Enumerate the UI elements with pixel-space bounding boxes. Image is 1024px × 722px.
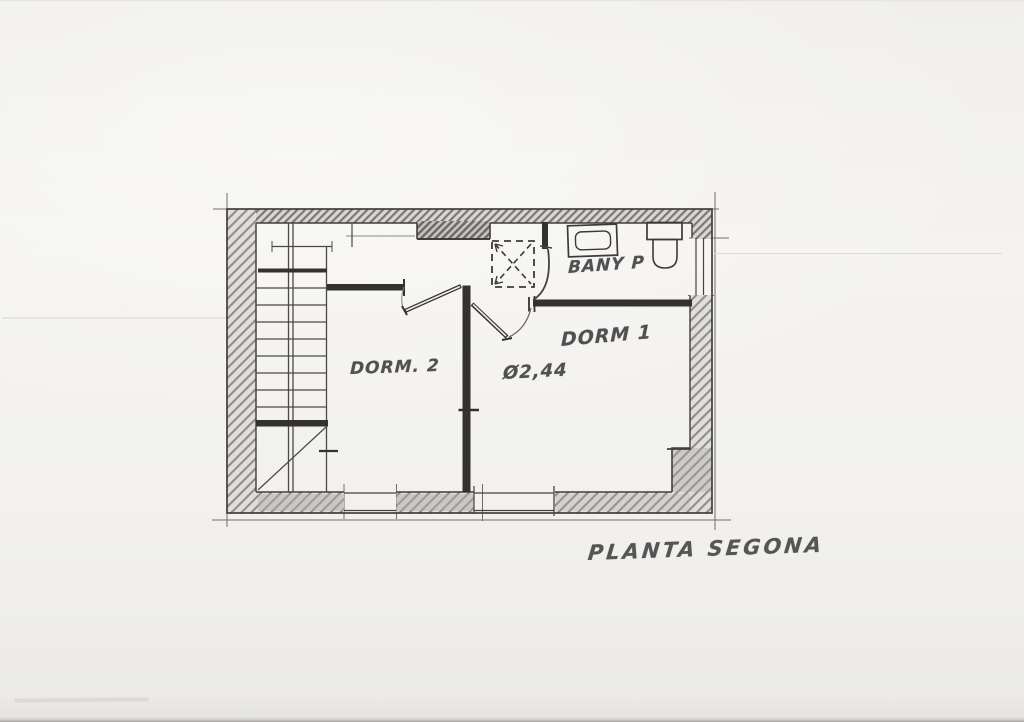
stair-diagonal: [258, 427, 326, 490]
floor-plan-svg: [0, 0, 1024, 722]
construction-lines: [2, 192, 1002, 530]
bany-door-stub: [542, 222, 548, 249]
toilet-icon: [647, 223, 682, 269]
door-bany: [533, 246, 552, 300]
scan-edge: [0, 717, 1024, 722]
dorm2-north-wall: [326, 284, 404, 291]
window-bany: [696, 238, 704, 295]
bany-south-wall: [533, 300, 692, 307]
door-dorm1: [472, 304, 531, 340]
staircase: [256, 223, 352, 492]
door-dorm2: [402, 286, 461, 315]
doors: [402, 246, 552, 340]
shower-icon: [492, 241, 534, 287]
scanned-sketch-page: BANY P DORM 1 DORM. 2 Ø2,44 PLANTA SEGON…: [0, 0, 1024, 722]
window-dorm2: [344, 493, 397, 511]
stair-landing-edge: [256, 420, 328, 427]
room-label-dorm2: DORM. 2: [350, 356, 440, 379]
dimension-label: Ø2,44: [503, 360, 568, 384]
wall-thick-block: [417, 221, 490, 239]
window-dorm1: [474, 486, 554, 516]
sink-icon: [567, 224, 617, 257]
partition-wall: [463, 286, 471, 493]
